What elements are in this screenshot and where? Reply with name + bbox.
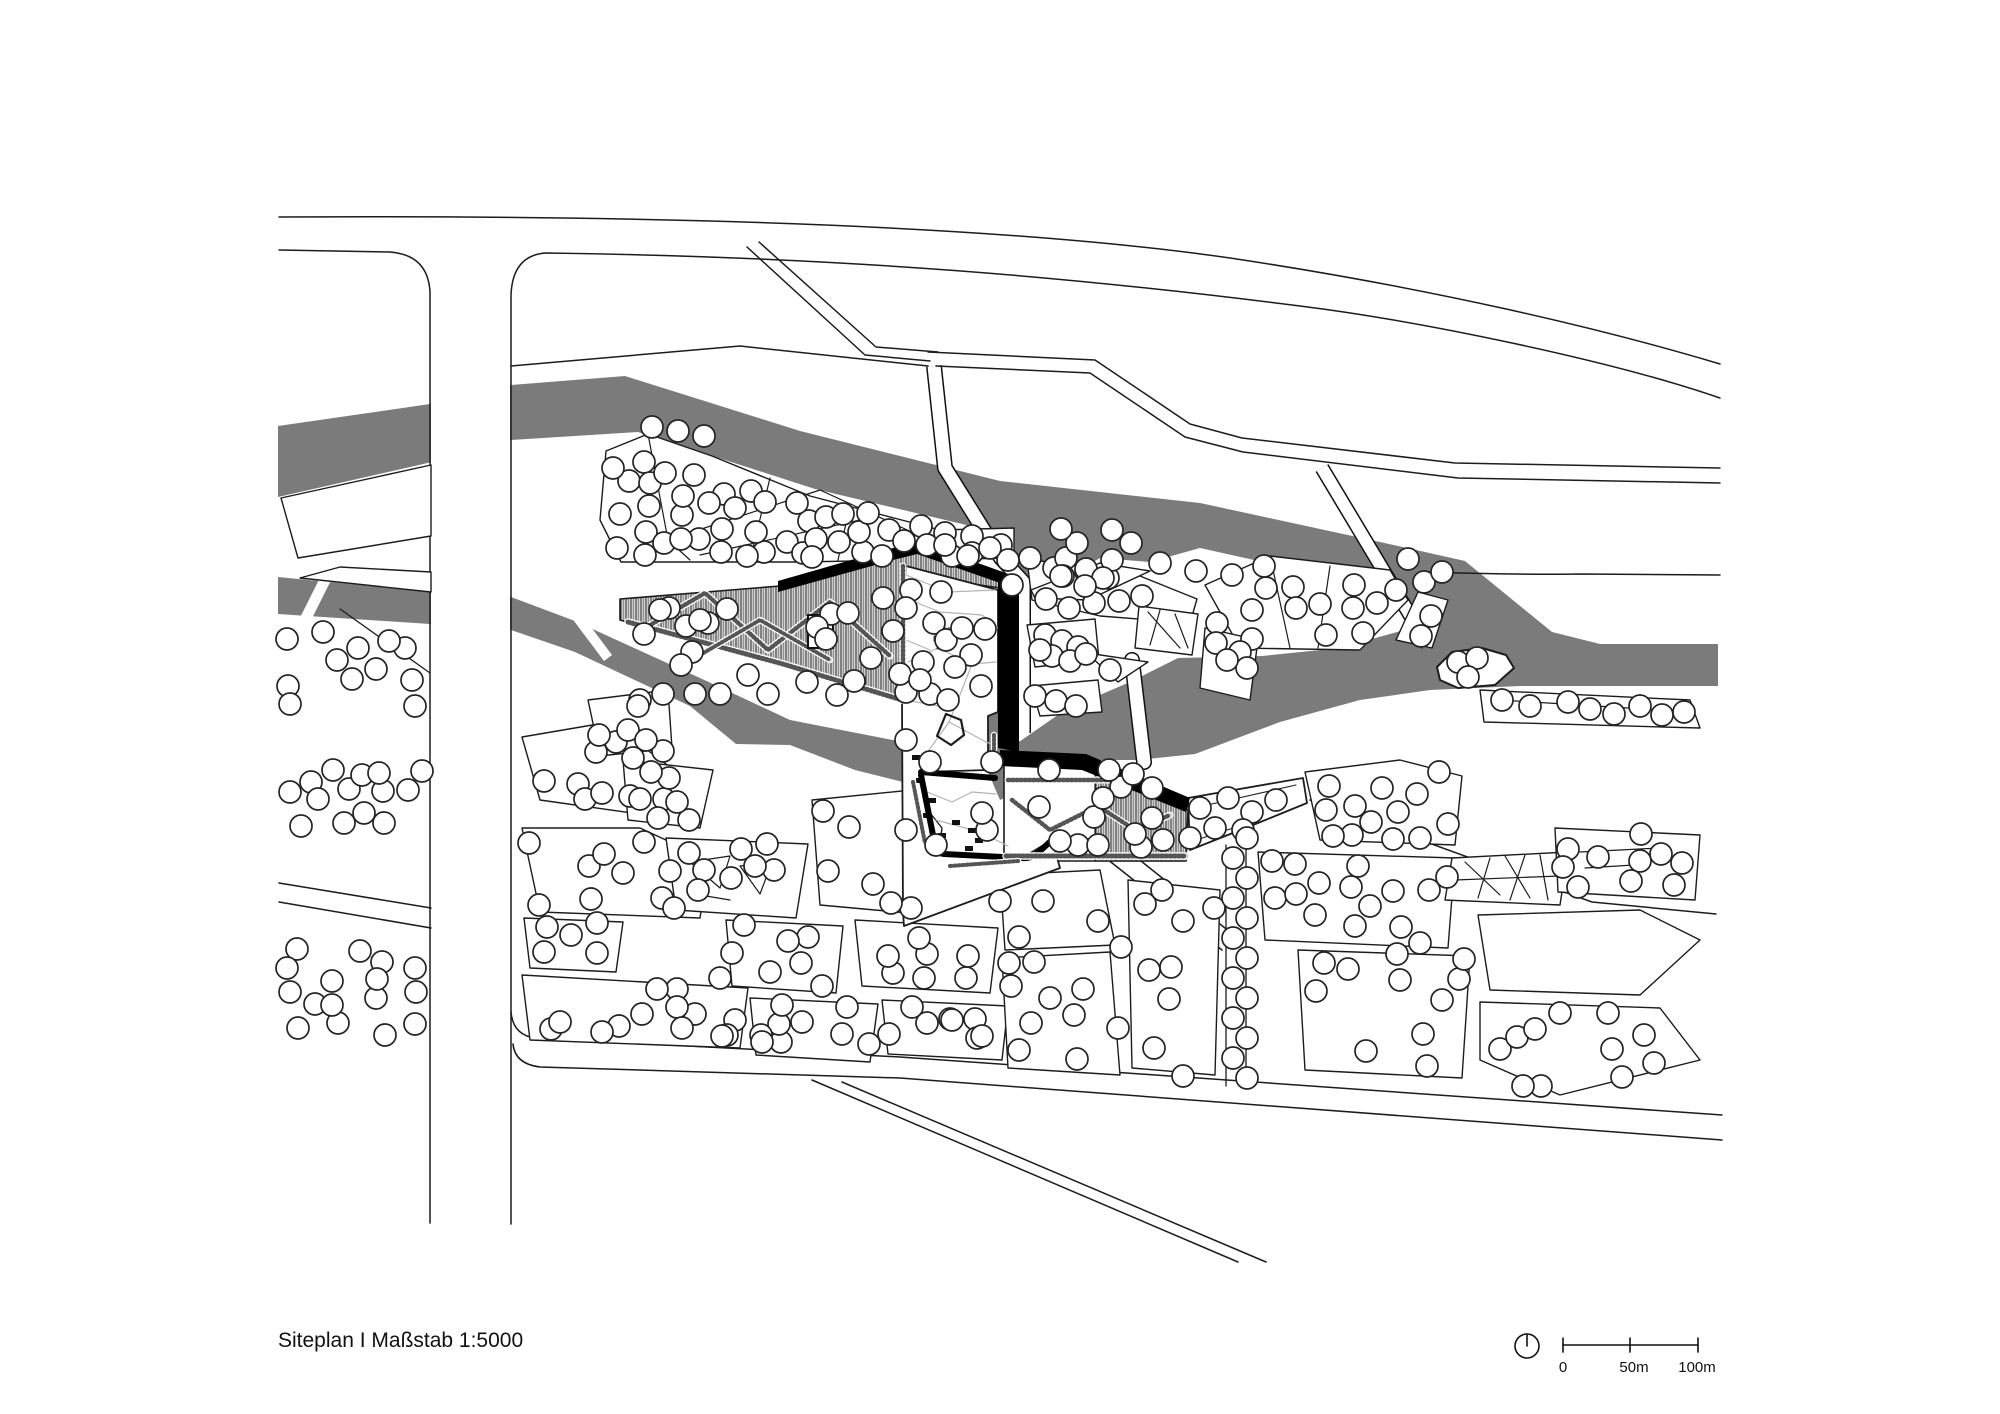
svg-text:Siteplan I Maßstab 1:5000: Siteplan I Maßstab 1:5000 [278,1329,523,1352]
svg-text:0: 0 [1559,1359,1567,1376]
svg-text:100m: 100m [1678,1359,1716,1376]
svg-text:50m: 50m [1619,1359,1648,1376]
